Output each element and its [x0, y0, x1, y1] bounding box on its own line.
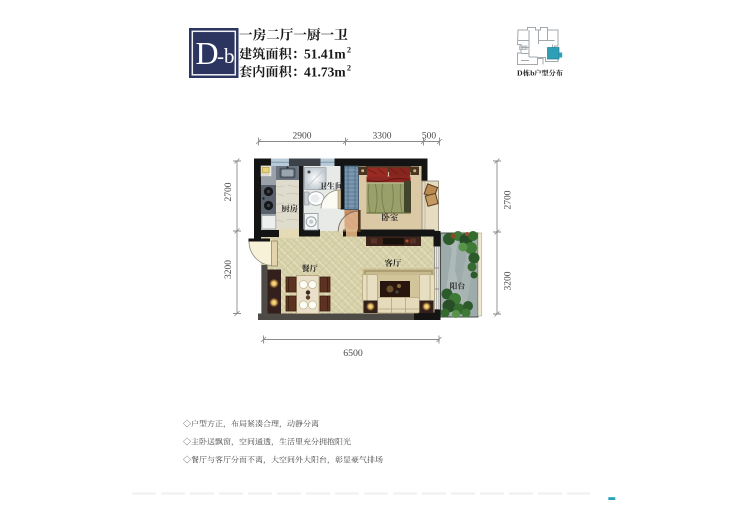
svg-text:D: D [517, 69, 523, 78]
svg-text:3300: 3300 [373, 132, 392, 142]
svg-text:500: 500 [422, 132, 437, 142]
svg-text:41.73m: 41.73m [304, 64, 346, 79]
svg-text:b: b [530, 69, 535, 78]
svg-text:2: 2 [347, 63, 351, 72]
svg-text:3200: 3200 [224, 260, 234, 279]
svg-text:-b: -b [217, 44, 235, 68]
svg-text:51.41m: 51.41m [304, 47, 346, 62]
svg-text:D: D [196, 35, 219, 71]
svg-text:6500: 6500 [343, 348, 363, 359]
svg-text:2700: 2700 [224, 182, 234, 201]
svg-text:2700: 2700 [504, 190, 514, 209]
svg-text:3200: 3200 [504, 271, 514, 290]
svg-text:2900: 2900 [293, 132, 312, 142]
svg-text:2: 2 [347, 46, 351, 55]
